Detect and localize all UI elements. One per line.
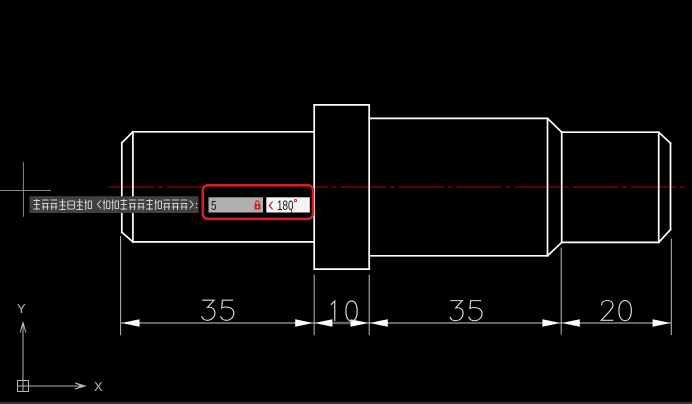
svg-text:X: X bbox=[94, 379, 103, 394]
svg-text:Y: Y bbox=[17, 301, 26, 316]
svg-text:5: 5 bbox=[211, 198, 217, 213]
